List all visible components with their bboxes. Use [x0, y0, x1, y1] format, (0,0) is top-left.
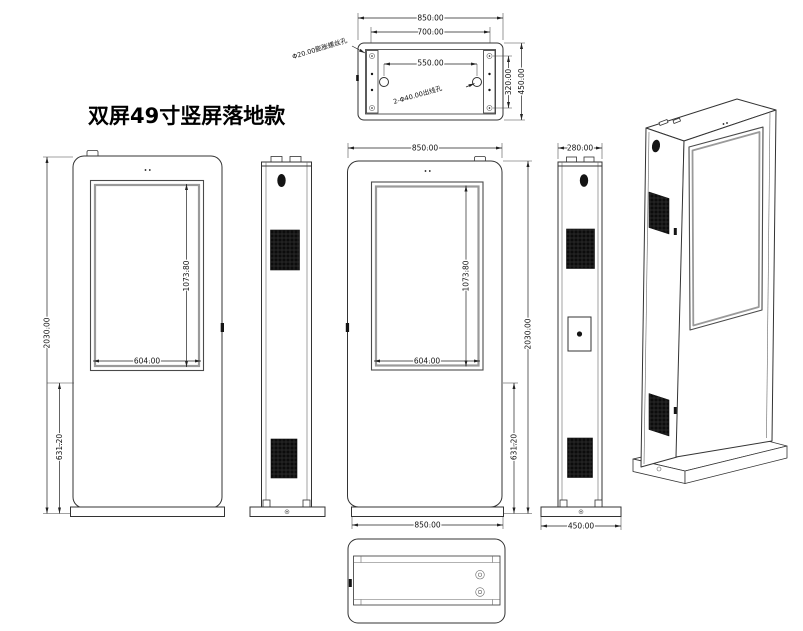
- cad-drawing: 双屏49寸竖屏落地款 850.00 700.00: [0, 0, 803, 631]
- side-lock-tab: [221, 323, 224, 332]
- top-tab: [567, 157, 577, 162]
- indicator-dot: [145, 169, 147, 171]
- indicator-dot: [726, 122, 728, 124]
- dim-top-700: 700.00: [371, 27, 490, 43]
- dim-rear-850-top: 850.00: [348, 143, 502, 158]
- perspective-view: [633, 99, 787, 484]
- indicator-dot: [429, 170, 431, 172]
- side-view-left: [250, 157, 325, 517]
- top-tab: [290, 157, 301, 163]
- vent-grille-upper: [567, 229, 595, 269]
- front-view: 2030.00 631.20 1073.80 604.00: [43, 151, 225, 517]
- rear-view: 850.00 1073.80 604.00 2030.00 631.20 85: [346, 143, 533, 530]
- dim-rear-850-bottom: 850.00: [352, 517, 503, 530]
- dim-label: 604.00: [414, 357, 440, 366]
- keyhole: [580, 174, 588, 187]
- vent-grille-lower: [568, 438, 593, 478]
- dim-label: 2030.00: [524, 318, 533, 349]
- dim-label: 320.00: [504, 69, 513, 95]
- access-panel-lock: [577, 331, 582, 336]
- hinge-tab: [674, 228, 677, 235]
- top-view: 850.00 700.00 550.00 320.00 450.00: [291, 13, 526, 120]
- vent-grille-lower: [271, 439, 297, 478]
- dim-label: 850.00: [417, 14, 443, 23]
- keyhole: [277, 174, 285, 187]
- dim-label: 700.00: [417, 28, 443, 37]
- callout-anchor-hole: Φ20.00膨胀螺丝孔: [291, 36, 365, 61]
- dim-label: 850.00: [412, 144, 438, 153]
- dim-label: 604.00: [134, 357, 160, 366]
- vent-grille-upper: [271, 230, 300, 270]
- vent-3d-lower: [649, 394, 669, 437]
- top-tab: [584, 157, 594, 162]
- hinge-tab: [674, 407, 677, 414]
- left-mount-strip: [367, 51, 379, 114]
- dim-front-631: 631.20: [47, 383, 74, 514]
- dim-label: 631.20: [510, 434, 519, 460]
- base-screw-dot: [286, 511, 287, 512]
- edge-notch: [356, 75, 359, 81]
- side-view-right: 280.00 450.00: [541, 143, 621, 531]
- dim-label: 450.00: [517, 68, 526, 94]
- front-base: [71, 507, 225, 517]
- indicator-dot: [723, 123, 725, 125]
- dim-side-280: 280.00: [558, 143, 602, 159]
- dim-label: 850.00: [414, 521, 440, 530]
- dim-label: 631.20: [55, 434, 64, 460]
- dim-label: 550.00: [417, 59, 443, 68]
- foot: [560, 500, 567, 507]
- bottom-view: [348, 539, 505, 623]
- screen-3d: [689, 127, 763, 330]
- callout-label: Φ20.00膨胀螺丝孔: [291, 36, 349, 61]
- dim-label: 2030.00: [43, 317, 52, 348]
- dim-rear-631: 631.20: [503, 383, 519, 514]
- foot: [595, 500, 602, 507]
- base-screw-dot: [580, 511, 581, 512]
- rear-base: [352, 507, 504, 517]
- foot: [263, 500, 270, 507]
- edge-tab: [349, 579, 352, 587]
- indicator-dot: [149, 169, 151, 171]
- page-title: 双屏49寸竖屏落地款: [88, 104, 286, 128]
- indicator-dot: [425, 170, 427, 172]
- dim-label: 450.00: [568, 522, 594, 531]
- side-lock-tab: [346, 323, 349, 332]
- drawing-sheet: 双屏49寸竖屏落地款 850.00 700.00: [0, 0, 803, 631]
- vent-3d-upper: [649, 192, 669, 234]
- top-tab: [271, 157, 282, 163]
- dim-side-450: 450.00: [541, 517, 621, 531]
- dim-label: 1073.80: [462, 260, 471, 291]
- foot: [303, 500, 310, 507]
- dim-label: 280.00: [567, 144, 593, 153]
- right-mount-strip: [484, 51, 496, 114]
- bottom-inner: [354, 556, 501, 605]
- dim-label: 1073.80: [182, 260, 191, 291]
